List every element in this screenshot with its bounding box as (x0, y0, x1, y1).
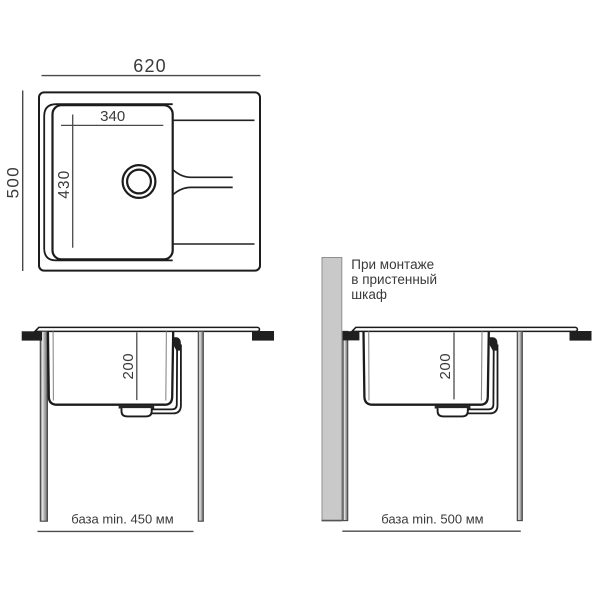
svg-text:430: 430 (56, 170, 73, 199)
svg-text:шкаф: шкаф (351, 287, 387, 302)
svg-text:200: 200 (120, 353, 137, 380)
svg-text:база min. 500 мм: база min. 500 мм (381, 512, 483, 527)
svg-text:340: 340 (100, 108, 125, 125)
svg-text:в пристенный: в пристенный (351, 272, 437, 287)
svg-text:620: 620 (133, 56, 167, 76)
svg-text:200: 200 (437, 353, 454, 380)
svg-text:При монтаже: При монтаже (351, 257, 434, 272)
svg-text:500: 500 (3, 166, 22, 198)
svg-text:база min. 450 мм: база min. 450 мм (71, 512, 173, 527)
